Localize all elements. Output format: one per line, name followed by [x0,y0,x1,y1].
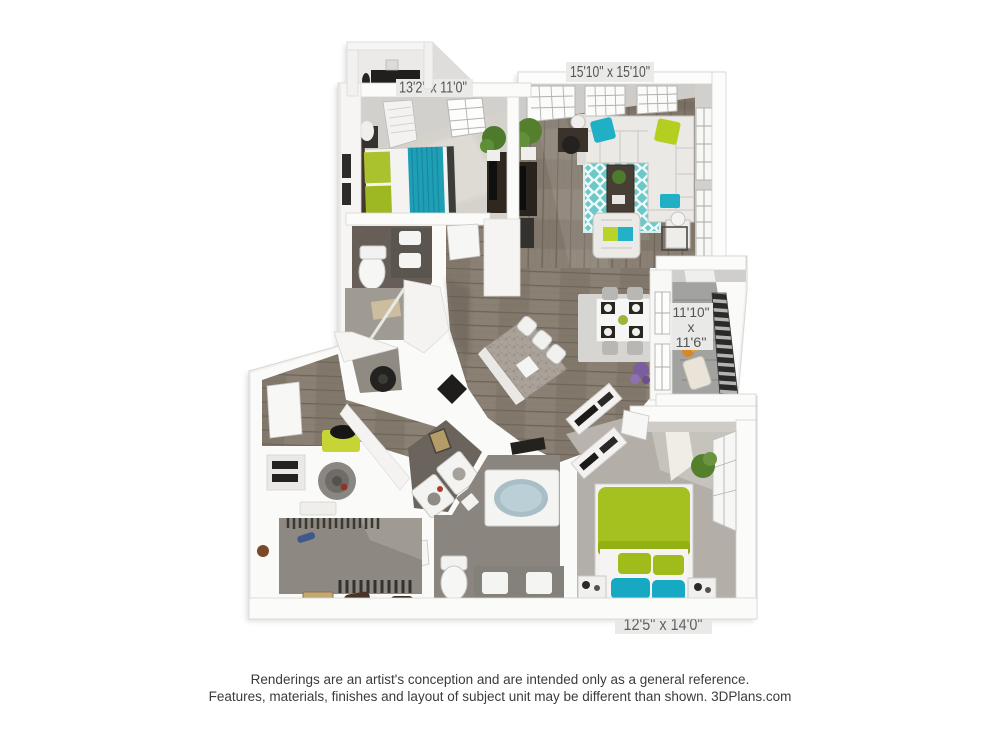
svg-text:11'10": 11'10" [673,304,710,320]
svg-text:x: x [688,319,695,335]
svg-text:11'6": 11'6" [676,334,707,350]
svg-text:15'10" x 15'10": 15'10" x 15'10" [570,64,650,81]
